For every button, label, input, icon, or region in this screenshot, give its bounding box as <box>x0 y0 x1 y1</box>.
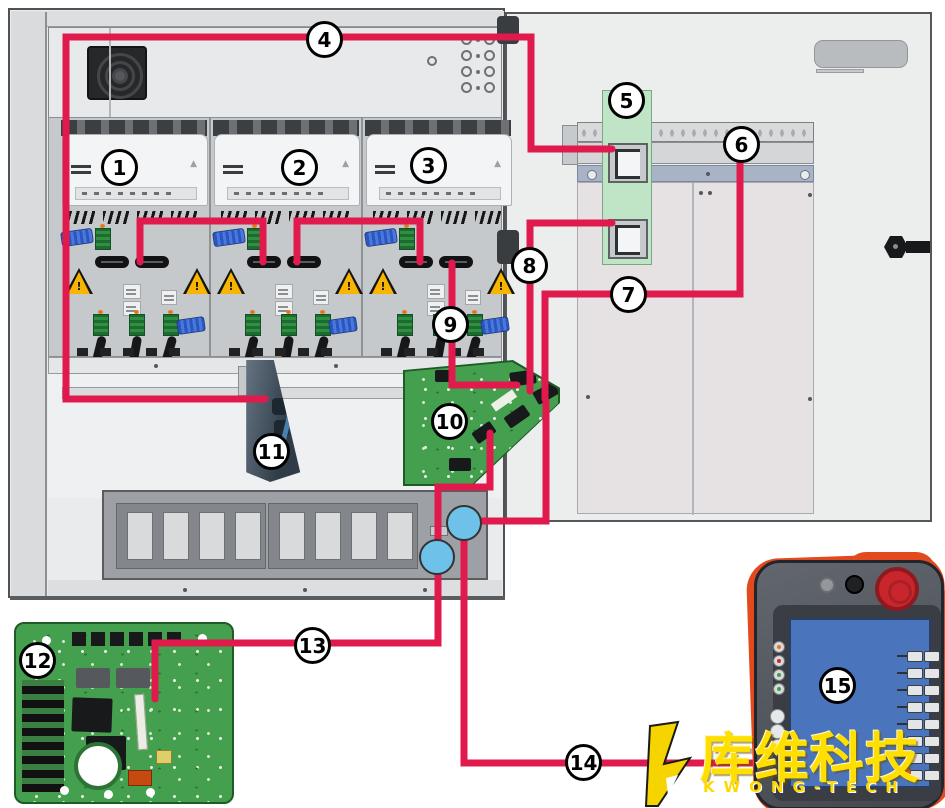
rail-bracket <box>562 125 578 165</box>
callout-7: 7 <box>610 276 647 313</box>
screw <box>808 193 812 197</box>
rating-label <box>161 290 177 305</box>
terminal-block <box>129 314 145 336</box>
pendant-connector-round <box>845 575 864 594</box>
jog-key-tick <box>897 655 907 657</box>
vent-slits <box>255 211 281 224</box>
pendant-keyswitch <box>819 577 835 593</box>
green-connector <box>399 228 415 250</box>
blue-ribbon-cable <box>212 228 246 247</box>
brand-name-en: KWONG-TECH <box>703 778 907 796</box>
warning-triangle-icon: ! <box>183 268 211 294</box>
panel-connector <box>430 526 448 536</box>
terminal-block <box>397 314 413 336</box>
screw <box>699 191 703 195</box>
status-led-button <box>773 641 785 653</box>
drive-vent-icon <box>375 165 395 174</box>
vent-slits <box>137 211 163 224</box>
jog-key <box>924 668 940 679</box>
keyhole-screw <box>800 170 810 180</box>
bottom-connector-row <box>229 348 343 356</box>
rating-label <box>465 290 481 305</box>
vendor-logo-icon: ▲ <box>190 159 197 169</box>
status-led-button <box>773 669 785 681</box>
brand-logo-icon <box>642 720 704 808</box>
panel-section-2 <box>268 503 418 569</box>
jog-key <box>907 668 923 679</box>
callout-1: 1 <box>101 149 138 186</box>
blue-ribbon-cable <box>60 228 94 247</box>
rj45-port-top <box>608 143 648 183</box>
terminal-block <box>245 314 261 336</box>
status-led-button <box>773 683 785 695</box>
jog-key <box>907 685 923 696</box>
vent-slits <box>323 211 349 224</box>
jog-key <box>924 685 940 696</box>
cabinet-base-edge <box>10 596 505 600</box>
terminal-block <box>93 314 109 336</box>
rj45-port-bottom <box>608 219 648 259</box>
callout-12: 12 <box>19 642 56 679</box>
screw <box>706 172 710 176</box>
warning-triangle-icon: ! <box>335 268 363 294</box>
vent-slits <box>441 211 467 224</box>
vendor-logo-icon: ▲ <box>494 159 501 169</box>
warning-triangle-icon: ! <box>217 268 245 294</box>
callout-6: 6 <box>723 126 760 163</box>
drive-label-strip <box>75 187 197 200</box>
watermark: 库维科技 KWONG-TECH <box>640 712 945 808</box>
jog-key-tick <box>897 689 907 691</box>
vent-slits <box>69 211 95 224</box>
jog-key <box>924 651 940 662</box>
control-pc-section <box>48 27 502 125</box>
drive-label-strip <box>379 187 501 200</box>
rating-label <box>123 284 141 299</box>
drive-vent-icon <box>71 165 91 174</box>
blue-ribbon-cable <box>480 316 510 335</box>
fan-icon <box>87 46 147 100</box>
pc-seam <box>109 28 111 126</box>
cabinet-door <box>505 12 932 522</box>
green-connector <box>247 228 263 250</box>
status-led-button <box>773 655 785 667</box>
callout-3: 3 <box>410 147 447 184</box>
vent-slits <box>373 211 399 224</box>
cabinet-left-frame <box>11 12 47 596</box>
wiring-diagram-stage: ▲ ! ! ▲ ! ! ▲ <box>0 0 945 808</box>
cable-junction-node <box>419 539 455 575</box>
drive-connector-x-right <box>287 256 321 268</box>
terminal-block <box>281 314 297 336</box>
callout-14: 14 <box>565 744 602 781</box>
blue-ribbon-cable <box>176 316 206 335</box>
drive-connector-x-left <box>95 256 129 268</box>
vent-grid <box>461 34 495 88</box>
cabinet-top-frame <box>11 11 504 27</box>
vendor-logo-icon: ▲ <box>342 159 349 169</box>
jog-key-tick <box>897 706 907 708</box>
blue-ribbon-cable <box>328 316 358 335</box>
callout-9: 9 <box>432 306 469 343</box>
plate-seam <box>692 183 694 515</box>
vent-slits <box>103 211 129 224</box>
callout-13: 13 <box>294 627 331 664</box>
door-key-blade <box>906 241 930 253</box>
door-hinge-top <box>497 16 519 44</box>
green-connector <box>95 228 111 250</box>
drive-connector-x-right <box>439 256 473 268</box>
vent-slits <box>171 211 197 224</box>
vent-slits <box>289 211 315 224</box>
callout-15: 15 <box>819 667 856 704</box>
warning-triangle-icon: ! <box>487 268 515 294</box>
door-handle <box>814 40 908 68</box>
bottom-connector-row <box>381 348 495 356</box>
vent-slits <box>407 211 433 224</box>
drive-connector-x-left <box>399 256 433 268</box>
handle-trim <box>816 69 864 73</box>
jog-key <box>907 651 923 662</box>
panel-section-1 <box>116 503 266 569</box>
screw <box>808 397 812 401</box>
rating-label <box>313 290 329 305</box>
blue-ribbon-cable <box>364 228 398 247</box>
drive-connector-x-right <box>135 256 169 268</box>
screw <box>586 395 590 399</box>
drive-vent-icon <box>223 165 243 174</box>
vent-slits <box>475 211 501 224</box>
rating-label <box>427 284 445 299</box>
control-cabinet: ▲ ! ! ▲ ! ! ▲ <box>8 8 505 598</box>
callout-10: 10 <box>431 403 468 440</box>
warning-triangle-icon: ! <box>369 268 397 294</box>
callout-4: 4 <box>306 21 343 58</box>
callout-2: 2 <box>281 149 318 186</box>
emergency-stop-button <box>875 567 919 611</box>
screw <box>708 191 712 195</box>
rating-label <box>275 284 293 299</box>
cable-junction-node <box>446 505 482 541</box>
bottom-connector-row <box>77 348 191 356</box>
screw <box>427 56 437 66</box>
keyhole-screw <box>587 170 597 180</box>
drive-label-strip <box>227 187 349 200</box>
warning-triangle-icon: ! <box>65 268 93 294</box>
vent-slits <box>221 211 247 224</box>
drive-module-1: ▲ ! ! <box>59 118 211 358</box>
callout-11: 11 <box>253 433 290 470</box>
callout-5: 5 <box>608 82 645 119</box>
key-hole <box>893 244 898 249</box>
drive-connector-x-left <box>247 256 281 268</box>
callout-8: 8 <box>511 247 548 284</box>
jog-key-tick <box>897 672 907 674</box>
